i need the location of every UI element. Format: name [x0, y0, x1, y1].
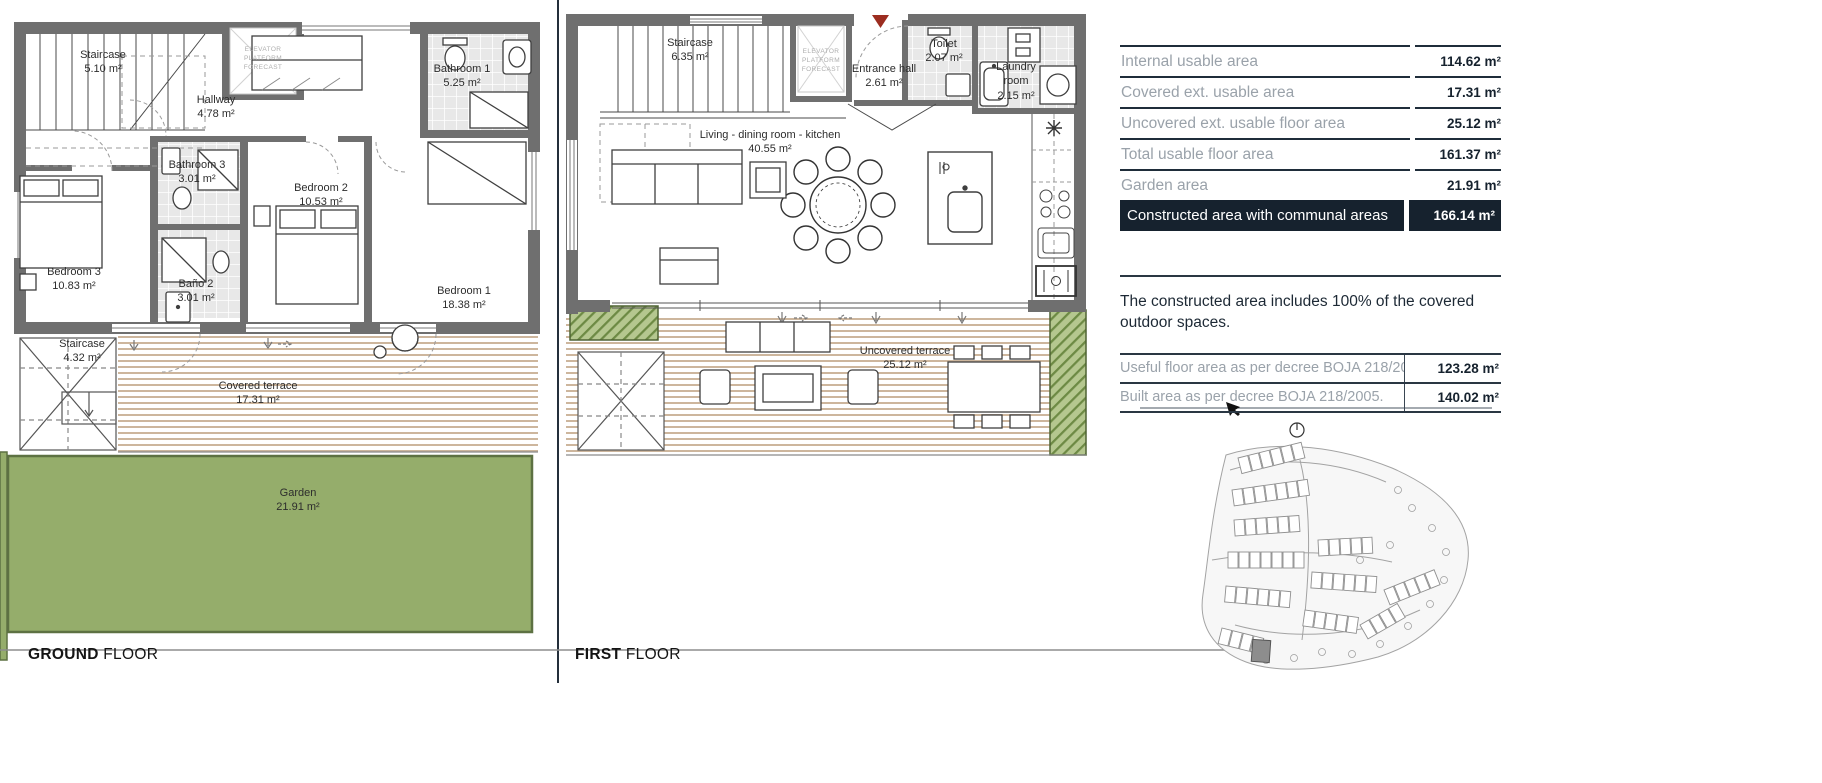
panel-divider [1120, 275, 1501, 277]
room-label-bedroom1: Bedroom 1 18.38 m² [437, 284, 491, 313]
room-label-bano2: Baño 2 3.01 m² [177, 277, 214, 306]
area-label: Internal usable area [1120, 45, 1410, 76]
area-row-total: Total usable floor area 161.37 m² [1120, 138, 1501, 169]
decree-table: Useful floor area as per decree BOJA 218… [1120, 353, 1501, 413]
floorplan-page: Staircase 5.10 m² ELEVATOR PLATFORM FORE… [0, 0, 1822, 783]
area-value: 25.12 m² [1415, 107, 1501, 138]
area-label: Total usable floor area [1120, 138, 1410, 169]
area-row-garden: Garden area 21.91 m² [1120, 169, 1501, 200]
room-label-bathroom3: Bathroom 3 3.01 m² [169, 158, 226, 187]
kitchen-counter [1032, 114, 1076, 300]
room-label-living: Living - dining room - kitchen 40.55 m² [700, 128, 841, 157]
room-label-uncovered-terrace: Uncovered terrace 25.12 m² [860, 344, 951, 373]
room-label-garden: Garden 21.91 m² [276, 486, 319, 515]
garden-strip [0, 452, 7, 660]
constructed-area-note: The constructed area includes 100% of th… [1120, 292, 1480, 334]
room-label-toilet: Toilet 2.07 m² [925, 37, 962, 66]
area-label: Garden area [1120, 169, 1410, 200]
area-label: Constructed area with communal areas [1120, 200, 1404, 231]
room-label-hallway: Hallway 4.78 m² [197, 93, 236, 122]
room-label-bedroom2: Bedroom 2 10.53 m² [294, 181, 348, 210]
decree-row-built: Built area as per decree BOJA 218/2005. … [1120, 382, 1501, 411]
highlighted-unit [1251, 639, 1270, 662]
area-row-constructed-highlight: Constructed area with communal areas 166… [1120, 200, 1501, 231]
elevator-note-ff: ELEVATOR PLATFORM FORECAST [802, 48, 841, 74]
first-floor-title: FIRST FLOOR [575, 646, 681, 664]
site-plan-drawing [1140, 402, 1492, 669]
elevator-note-gf: ELEVATOR PLATFORM FORECAST [244, 46, 283, 72]
area-row-uncovered-ext: Uncovered ext. usable floor area 25.12 m… [1120, 107, 1501, 138]
area-value: 114.62 m² [1415, 45, 1501, 76]
covered-terrace-deck [118, 336, 538, 452]
room-label-staircase2-gf: Staircase 4.32 m² [59, 337, 105, 366]
decree-row-useful: Useful floor area as per decree BOJA 218… [1120, 353, 1501, 382]
area-value: 166.14 m² [1409, 200, 1501, 231]
room-label-staircase-ff: Staircase 6.35 m² [667, 36, 713, 65]
area-row-covered-ext: Covered ext. usable area 17.31 m² [1120, 76, 1501, 107]
area-row-internal: Internal usable area 114.62 m² [1120, 45, 1501, 76]
room-label-bedroom3: Bedroom 3 10.83 m² [47, 265, 101, 294]
decree-value: 123.28 m² [1404, 355, 1501, 382]
ground-floor-title: GROUND FLOOR [28, 646, 158, 664]
kitchen-island [928, 152, 992, 244]
decree-label: Useful floor area as per decree BOJA 218… [1120, 355, 1404, 382]
room-label-covered-terrace: Covered terrace 17.31 m² [219, 379, 298, 408]
room-label-staircase-gf: Staircase 5.10 m² [80, 48, 126, 77]
entrance-marker-icon [872, 15, 889, 28]
area-label: Covered ext. usable area [1120, 76, 1410, 107]
room-label-bathroom1: Bathroom 1 5.25 m² [434, 62, 491, 91]
terrace-stair-void [578, 352, 664, 450]
decree-label: Built area as per decree BOJA 218/2005. [1120, 384, 1404, 411]
room-label-entrance-hall: Entrance hall 2.61 m² [852, 62, 916, 91]
decree-value: 140.02 m² [1404, 384, 1501, 411]
living-furniture [612, 150, 786, 284]
outdoor-dining [948, 346, 1040, 428]
bedroom2-furniture [252, 36, 362, 304]
north-compass-icon [1290, 423, 1304, 437]
planter-right [1050, 310, 1086, 455]
areas-panel: Internal usable area 114.62 m² Covered e… [1120, 45, 1501, 413]
dining-table [781, 147, 895, 263]
garden-area [8, 456, 532, 632]
area-value: 17.31 m² [1415, 76, 1501, 107]
area-value: 161.37 m² [1415, 138, 1501, 169]
area-value: 21.91 m² [1415, 169, 1501, 200]
room-label-laundry: Laundry room 2.15 m² [987, 60, 1045, 103]
area-label: Uncovered ext. usable floor area [1120, 107, 1410, 138]
